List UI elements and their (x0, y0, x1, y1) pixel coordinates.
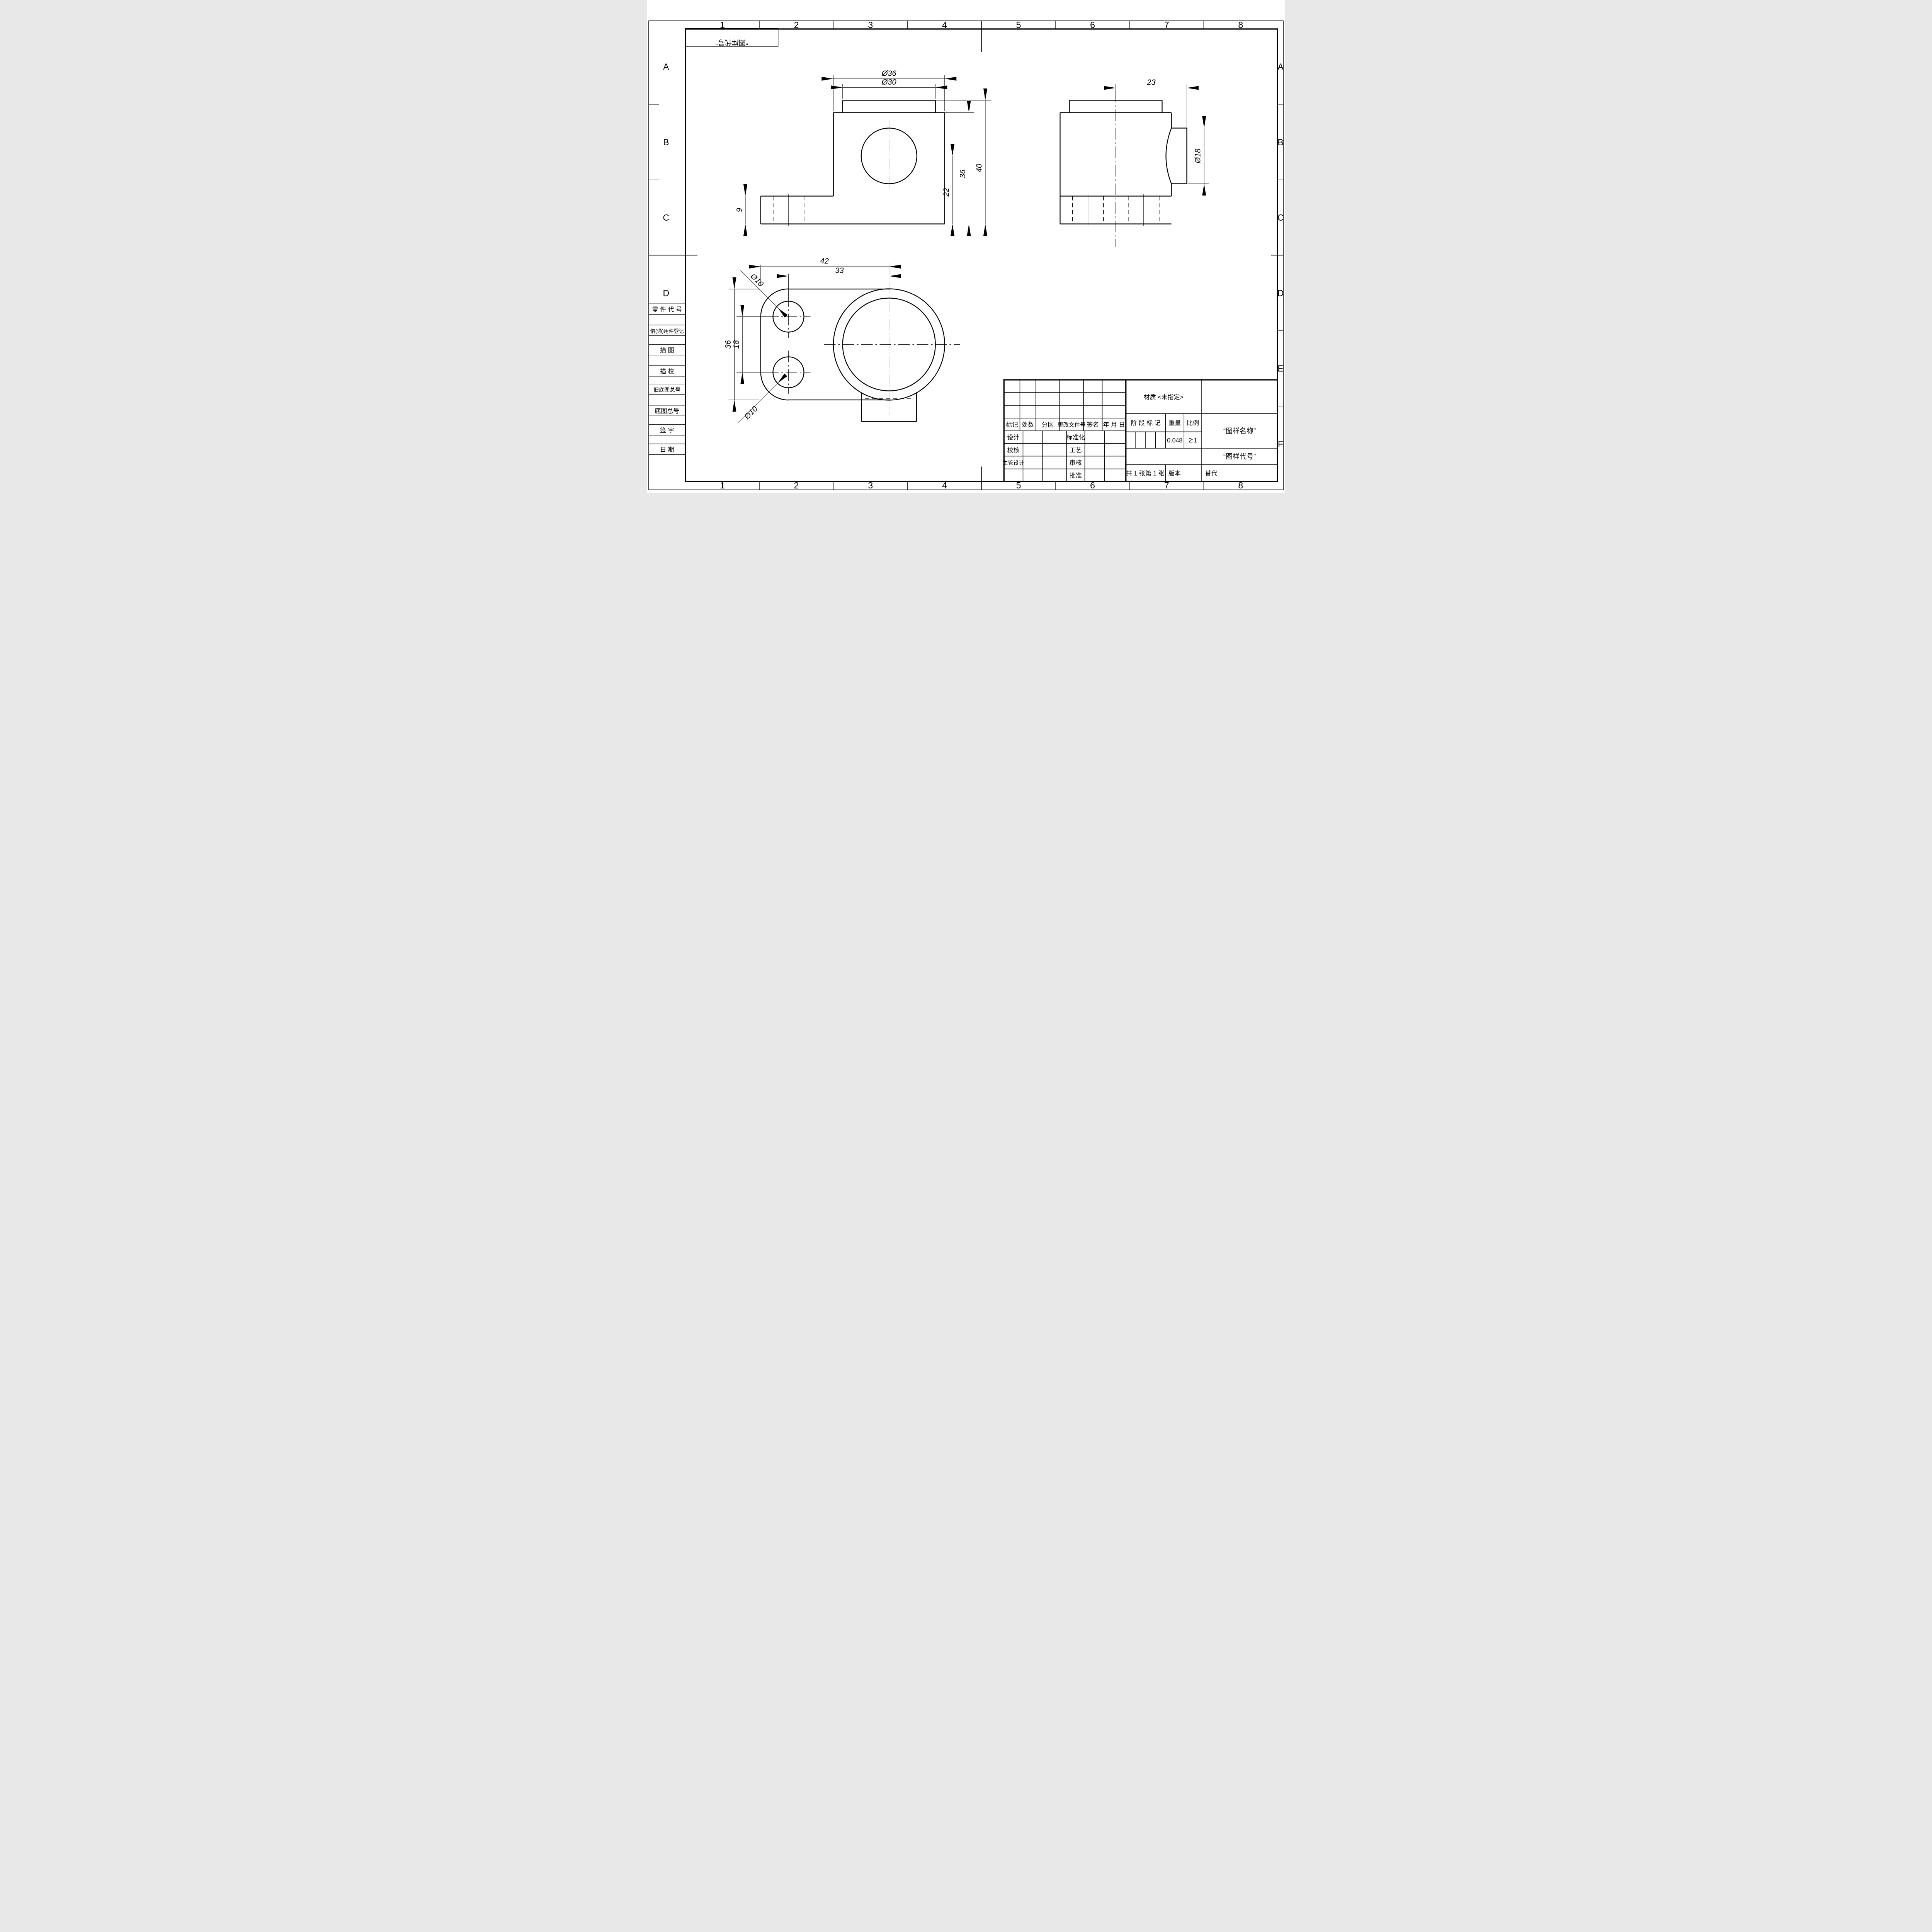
tb-header-zone: 分区 (1041, 422, 1054, 429)
dim-plan-18: 18 (732, 340, 741, 349)
sidebar-label-part-code: 零 件 代 号 (652, 306, 682, 313)
tb-replace: 替代 (1205, 470, 1218, 477)
dim-front-36: 36 (959, 169, 967, 178)
zone-col-label: 7 (1164, 20, 1169, 30)
tb-scale-value: 2:1 (1189, 437, 1197, 444)
zone-row-label: D (663, 288, 669, 298)
sidebar-label-date: 日 期 (660, 446, 674, 453)
sheet-border (649, 21, 1284, 490)
zone-col-label: 1 (720, 480, 725, 490)
zone-ticks-top (759, 21, 1204, 52)
tb-header-date: 年 月 日 (1103, 422, 1125, 429)
sidebar-label-signature: 签 字 (660, 427, 674, 434)
zone-col-label: 3 (868, 480, 873, 490)
zone-col-label: 8 (1238, 20, 1243, 30)
zone-col-label: 4 (942, 20, 947, 30)
tb-weight-value: 0.048 (1167, 437, 1182, 444)
dim-plan-33: 33 (835, 267, 844, 275)
plan-view-dimensions: 42 33 36 18 Ø10 Ø10 (724, 257, 889, 423)
tb-drawing-name: “图样名称” (1223, 427, 1256, 435)
tb-stage-mark: 阶 段 标 记 (1131, 420, 1160, 427)
sidebar-label-master: 底图总号 (655, 408, 679, 415)
tb-role-std: 标准化 (1066, 434, 1085, 441)
sidebar-label-borrow-register: 借(通)用件登记 (650, 328, 684, 334)
tb-role-approve: 批准 (1070, 472, 1082, 479)
front-view (761, 100, 945, 226)
tb-version: 版本 (1168, 470, 1181, 477)
zone-col-label: 3 (868, 20, 873, 30)
dim-side-dia18: Ø18 (1194, 149, 1202, 164)
sidebar: 零 件 代 号 借(通)用件登记 描 图 描 校 旧底图总号 底图总号 签 字 … (649, 304, 685, 454)
tb-role-check: 校核 (1007, 447, 1019, 454)
tb-header-count: 处数 (1022, 422, 1034, 429)
tb-sheets-total: 共 1 张 (1126, 470, 1145, 477)
side-view-dimensions: 23 Ø18 (1116, 78, 1209, 184)
sidebar-label-old-master: 旧底图总号 (653, 387, 680, 393)
zone-row-label: A (1277, 62, 1284, 72)
zone-row-label: D (1277, 288, 1284, 298)
zone-col-label: 2 (794, 480, 799, 490)
dim-front-22: 22 (942, 188, 951, 197)
zone-labels: 1 2 3 4 5 6 7 8 1 2 3 4 5 6 7 8 A B C D … (663, 20, 1284, 490)
dim-plan-hole-bottom: Ø10 (743, 405, 759, 421)
tb-sheet-no: 第 1 张 (1145, 470, 1165, 477)
tb-role-design: 设计 (1007, 434, 1019, 441)
tb-header-sign: 签名 (1087, 422, 1099, 429)
zone-col-label: 2 (794, 20, 799, 30)
cad-canvas: 1 2 3 4 5 6 7 8 1 2 3 4 5 6 7 8 A B C D … (647, 0, 1285, 493)
tb-header-mark: 标记 (1006, 422, 1018, 429)
mirror-box: “图样代号” (685, 28, 778, 46)
zone-row-label: E (1277, 364, 1283, 374)
zone-col-label: 5 (1016, 20, 1021, 30)
dim-front-dia30: Ø30 (881, 78, 896, 87)
zone-ticks-sides (649, 104, 1284, 406)
tb-role-chief: 主管设计 (1003, 460, 1024, 466)
zone-row-label: B (663, 137, 669, 147)
tb-weight-label: 重量 (1168, 420, 1181, 427)
tb-material: 材质 <未指定> (1144, 394, 1184, 401)
dim-front-40: 40 (975, 164, 984, 172)
sidebar-label-trace-check: 描 校 (660, 368, 674, 375)
dim-front-9: 9 (735, 208, 744, 212)
zone-row-label: B (1277, 137, 1283, 147)
tb-role-audit: 审核 (1070, 459, 1082, 466)
dim-plan-42: 42 (820, 257, 829, 265)
plan-view (761, 263, 960, 422)
dim-plan-hole-top: Ø10 (748, 272, 765, 288)
zone-row-label: C (1277, 213, 1284, 223)
tb-drawing-code: “图样代号” (1223, 453, 1256, 461)
tb-scale-label: 比例 (1187, 420, 1199, 427)
drawing-sheet: 1 2 3 4 5 6 7 8 1 2 3 4 5 6 7 8 A B C D … (647, 0, 1285, 493)
dim-plan-36: 36 (724, 340, 733, 349)
side-view (1060, 91, 1187, 247)
zone-row-label: F (1278, 439, 1283, 449)
dim-side-23: 23 (1146, 78, 1155, 87)
mirrored-drawing-code: “图样代号” (716, 39, 748, 46)
tb-role-process: 工艺 (1070, 447, 1082, 454)
title-block: 标记 处数 分区 更改文件号 签名 年 月 日 设计 标准化 校核 工艺 主管设… (1003, 380, 1278, 481)
sidebar-label-trace: 描 图 (660, 347, 674, 354)
tb-header-doc-no: 更改文件号 (1058, 422, 1086, 429)
zone-col-label: 4 (942, 480, 947, 490)
zone-row-label: A (663, 62, 669, 72)
zone-col-label: 6 (1090, 20, 1095, 30)
zone-row-label: C (663, 213, 669, 223)
dim-front-dia36: Ø36 (881, 69, 897, 78)
zone-ticks-bottom (759, 467, 1204, 490)
